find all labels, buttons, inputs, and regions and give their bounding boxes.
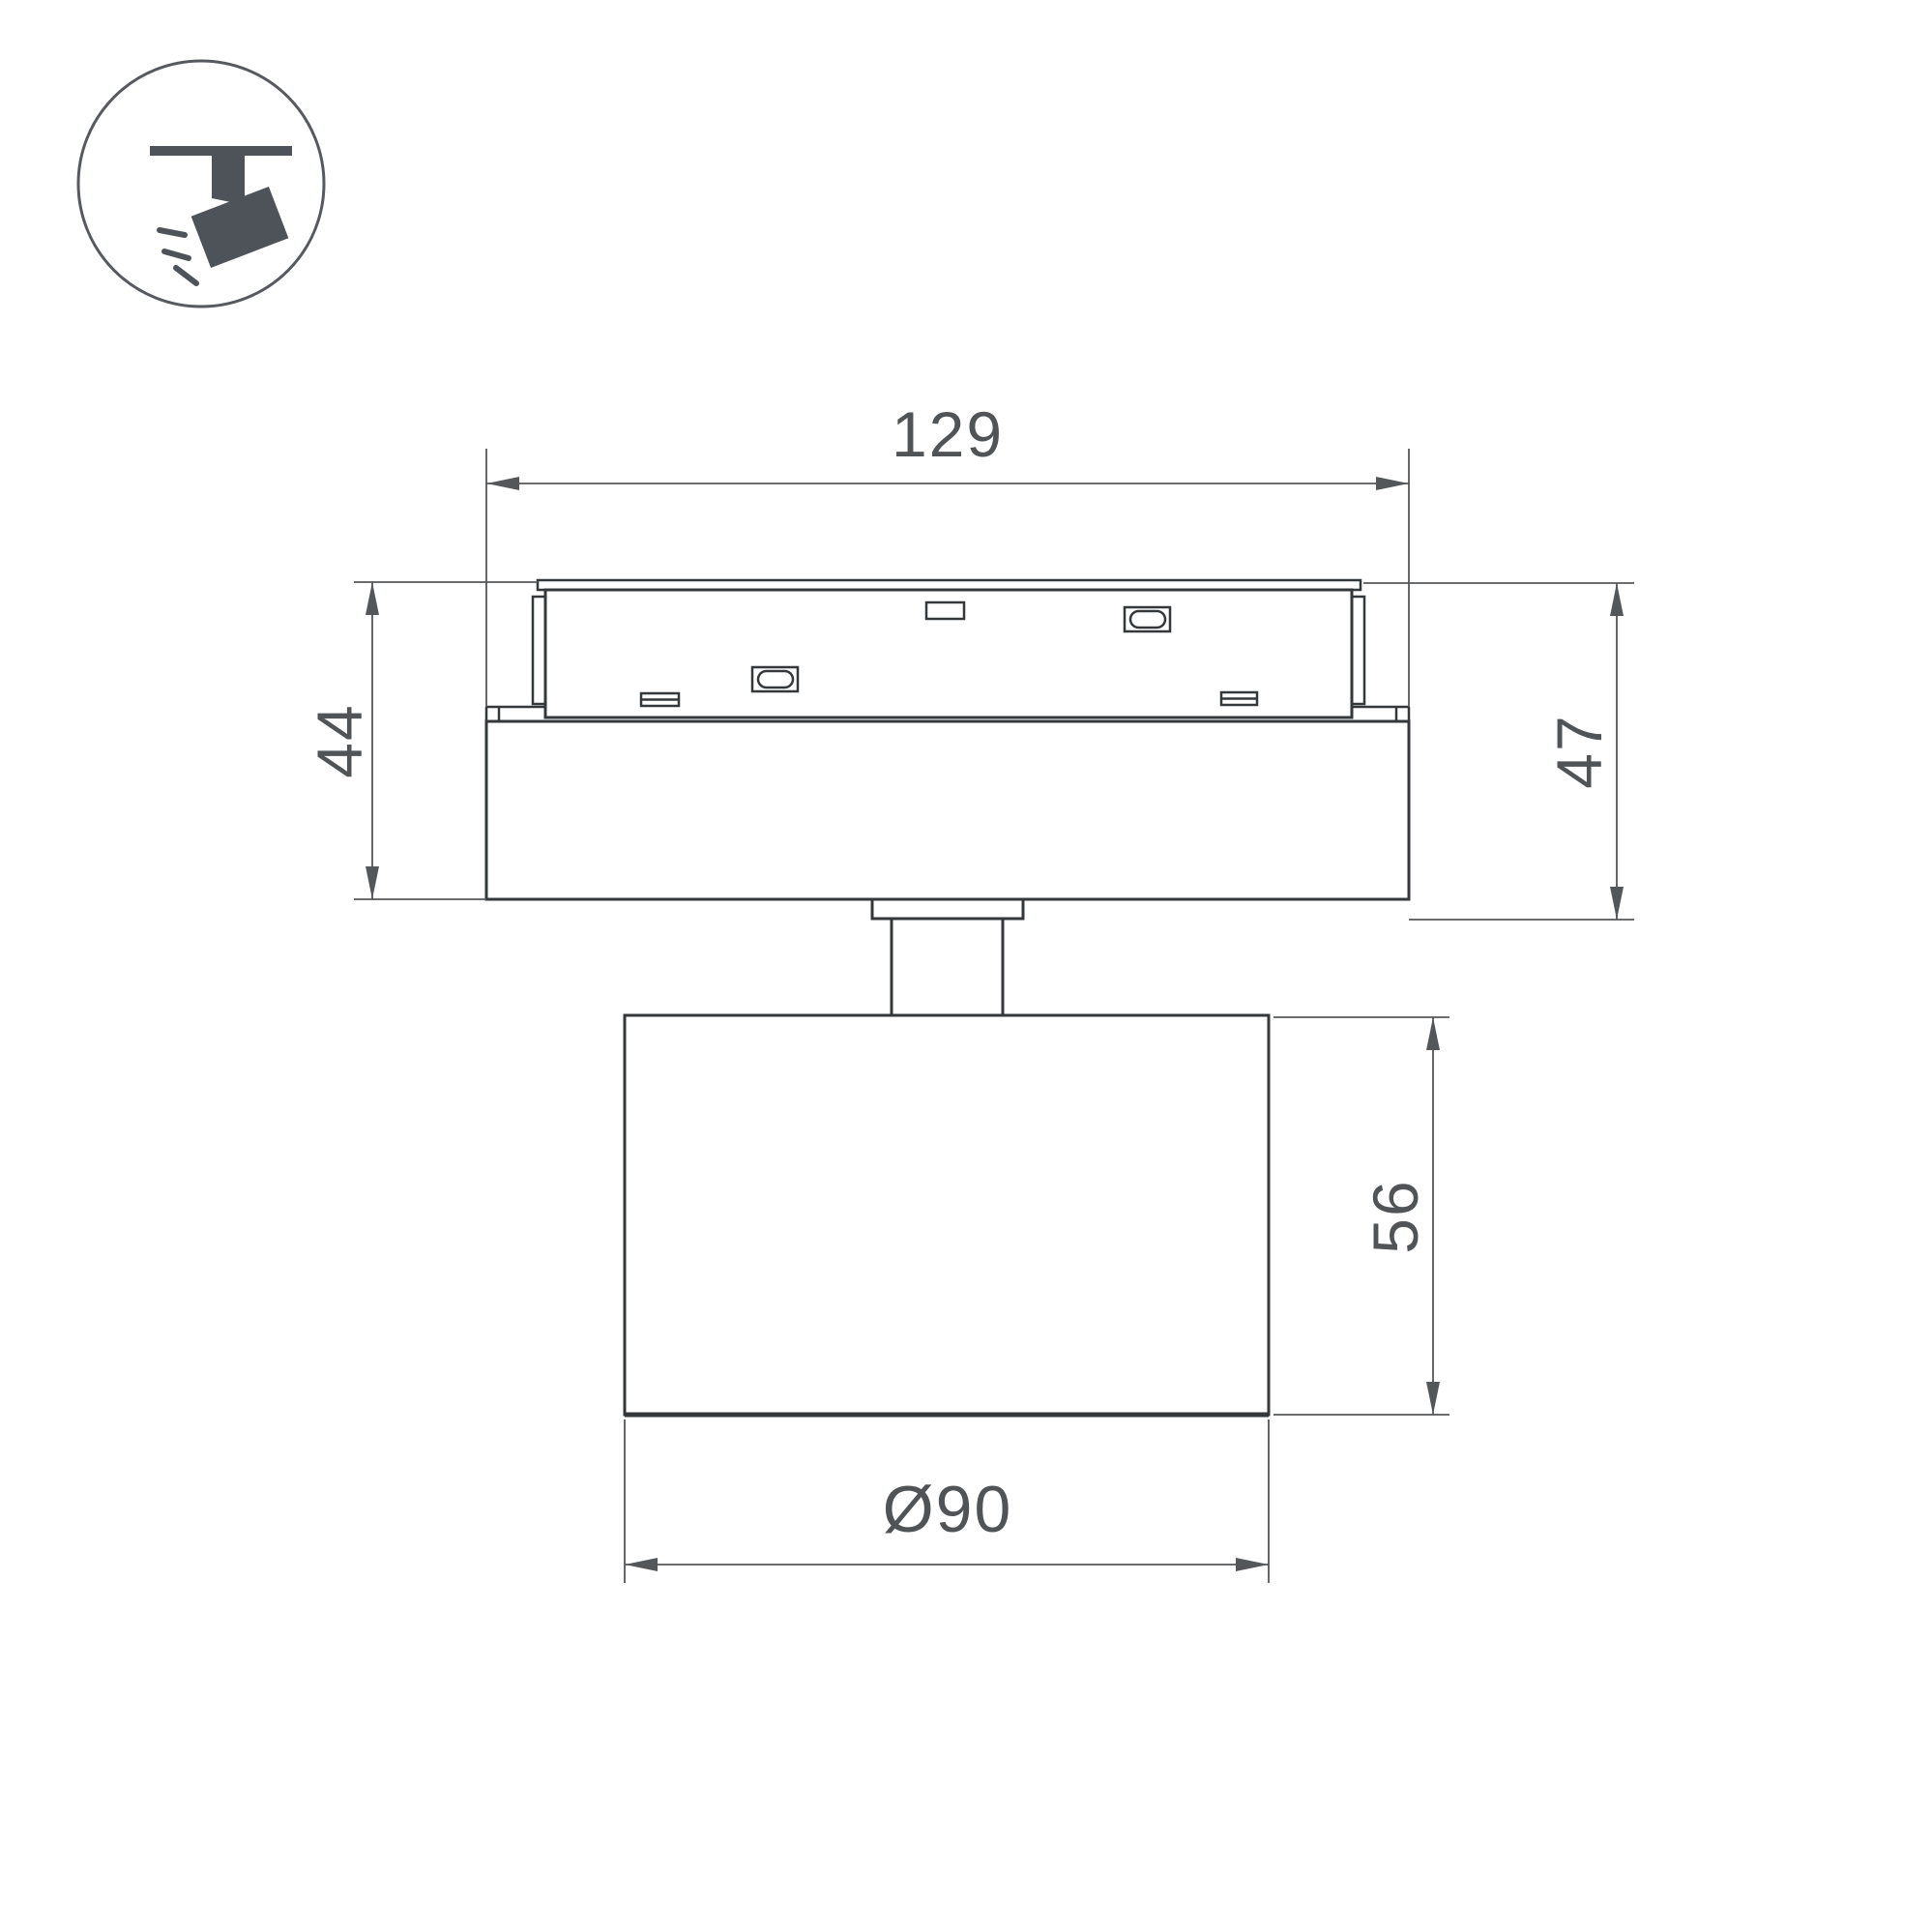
dimension-label-d90: Ø90 [883,1473,1013,1546]
adapter-flange [486,707,1409,721]
arrowhead-top [366,582,379,615]
dimension-label-129: 129 [892,398,1004,470]
technical-drawing: 129 44 47 56 [0,0,1932,1932]
dimension-label-44: 44 [304,703,375,777]
track-spotlight-icon [78,61,324,307]
dimension-base-height-left: 44 [304,582,538,899]
dimension-head-height: 56 [1273,1017,1449,1415]
dimension-track-width: 129 [486,398,1409,707]
dimension-overall-height-right: 47 [1363,583,1634,920]
socket-left-pill [758,671,793,688]
rect-cutout-top [926,602,964,619]
arrowhead-right [1376,477,1409,490]
drawing-page: 129 44 47 56 [0,0,1932,1932]
arrowhead-left [625,1558,658,1571]
dimension-label-47: 47 [1543,714,1615,788]
arrowhead-bottom [366,866,379,899]
arrowhead-left [486,477,519,490]
arrowhead-right [1236,1558,1269,1571]
dimension-label-56: 56 [1360,1179,1431,1253]
swivel-bracket [872,899,1023,919]
icon-track-bar [150,146,292,156]
arrowhead-top [1610,583,1624,616]
arrowhead-bottom [1610,887,1624,920]
base-body [486,721,1409,899]
spot-head-cylinder [625,1015,1269,1415]
icon-circle [78,61,324,307]
clip-left [533,597,545,704]
arrowhead-top [1426,1017,1440,1050]
connector-cutouts [641,602,1257,706]
socket-right-pill [1130,611,1165,628]
icon-stem [212,155,245,205]
arrowhead-bottom [1426,1382,1440,1415]
clip-right [1352,597,1364,704]
dimension-head-diameter: Ø90 [625,1420,1269,1583]
swivel-stem [892,919,1003,1015]
luminaire-side-view [486,580,1409,1415]
